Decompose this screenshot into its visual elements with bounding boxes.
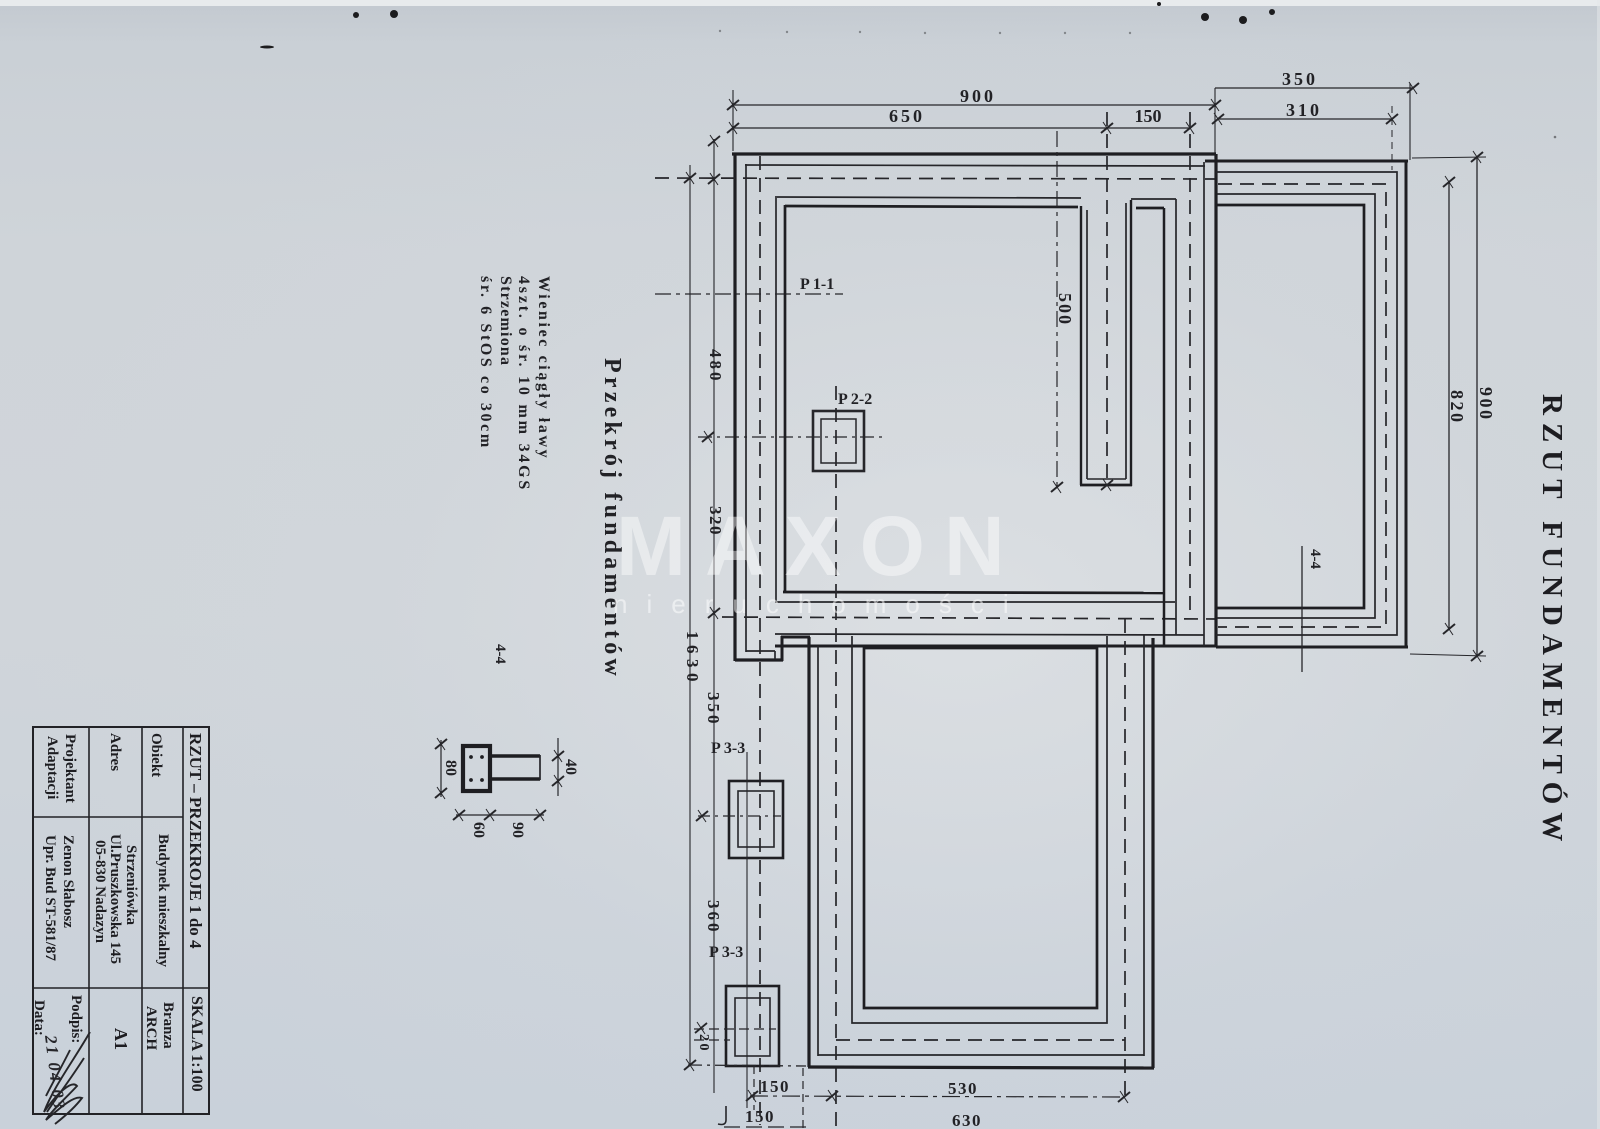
- svg-text:650: 650: [889, 106, 925, 126]
- svg-text:310: 310: [1286, 100, 1322, 120]
- svg-text:500: 500: [1055, 293, 1075, 326]
- svg-text:SKALA 1:100: SKALA 1:100: [188, 996, 205, 1092]
- svg-text:Strzeniówka: Strzeniówka: [123, 845, 139, 925]
- svg-text:4szt. o śr. 10 mm 34GS: 4szt. o śr. 10 mm 34GS: [515, 276, 532, 492]
- svg-text:Data:: Data:: [31, 1000, 47, 1036]
- svg-text:P 2-2: P 2-2: [838, 391, 872, 408]
- svg-text:Podpis:: Podpis:: [68, 995, 84, 1043]
- svg-text:60: 60: [470, 822, 487, 838]
- svg-text:900: 900: [1476, 387, 1496, 422]
- svg-text:350: 350: [704, 692, 723, 727]
- svg-text:630: 630: [952, 1111, 982, 1129]
- svg-text:RZUT FUNDAMENTÓW: RZUT FUNDAMENTÓW: [1536, 394, 1569, 849]
- svg-text:150: 150: [760, 1077, 790, 1096]
- svg-text:Branza: Branza: [160, 1002, 176, 1049]
- svg-text:Ul.Pruszkowska 145: Ul.Pruszkowska 145: [107, 834, 123, 964]
- svg-text:40: 40: [562, 759, 579, 775]
- svg-text:Projektant: Projektant: [62, 734, 78, 803]
- svg-text:4-4: 4-4: [492, 644, 508, 664]
- svg-text:P 3-3: P 3-3: [711, 740, 745, 757]
- svg-text:Zenon Słabosz: Zenon Słabosz: [60, 835, 76, 928]
- svg-text:A1: A1: [111, 1028, 131, 1050]
- svg-text:360: 360: [704, 900, 723, 935]
- svg-text:śr. 6 StOS co 30cm: śr. 6 StOS co 30cm: [477, 276, 494, 450]
- svg-text:P 1-1: P 1-1: [800, 276, 834, 293]
- svg-text:150: 150: [745, 1107, 775, 1126]
- svg-text:150: 150: [1135, 106, 1162, 126]
- svg-text:Obiekt: Obiekt: [148, 733, 164, 777]
- svg-text:820: 820: [1447, 390, 1467, 425]
- svg-text:21 04 03: 21 04 03: [41, 1033, 69, 1111]
- svg-text:90: 90: [509, 822, 526, 838]
- svg-text:Wieniec ciągły ławy: Wieniec ciągły ławy: [535, 276, 552, 460]
- svg-text:20: 20: [696, 1034, 711, 1053]
- svg-text:P 3-3: P 3-3: [709, 944, 743, 961]
- svg-text:Budynek mieszkalny: Budynek mieszkalny: [155, 834, 171, 967]
- svg-text:Strzemiona: Strzemiona: [497, 276, 514, 366]
- svg-text:Adaptacji: Adaptacji: [44, 736, 60, 799]
- svg-text:4-4: 4-4: [1307, 549, 1323, 569]
- svg-text:05-830 Nadazyn: 05-830 Nadazyn: [92, 840, 108, 944]
- svg-text:900: 900: [960, 86, 996, 106]
- svg-text:Adres: Adres: [107, 733, 123, 771]
- svg-text:ARCH: ARCH: [143, 1006, 159, 1050]
- svg-text:480: 480: [706, 349, 725, 384]
- svg-text:350: 350: [1282, 69, 1318, 89]
- svg-text:80: 80: [442, 760, 459, 776]
- svg-text:RZUT – PRZEKROJE 1 do 4: RZUT – PRZEKROJE 1 do 4: [186, 733, 205, 949]
- svg-text:530: 530: [948, 1079, 978, 1098]
- svg-text:Upr. Bud ST-581/87: Upr. Bud ST-581/87: [42, 835, 58, 962]
- svg-text:1630: 1630: [683, 631, 702, 687]
